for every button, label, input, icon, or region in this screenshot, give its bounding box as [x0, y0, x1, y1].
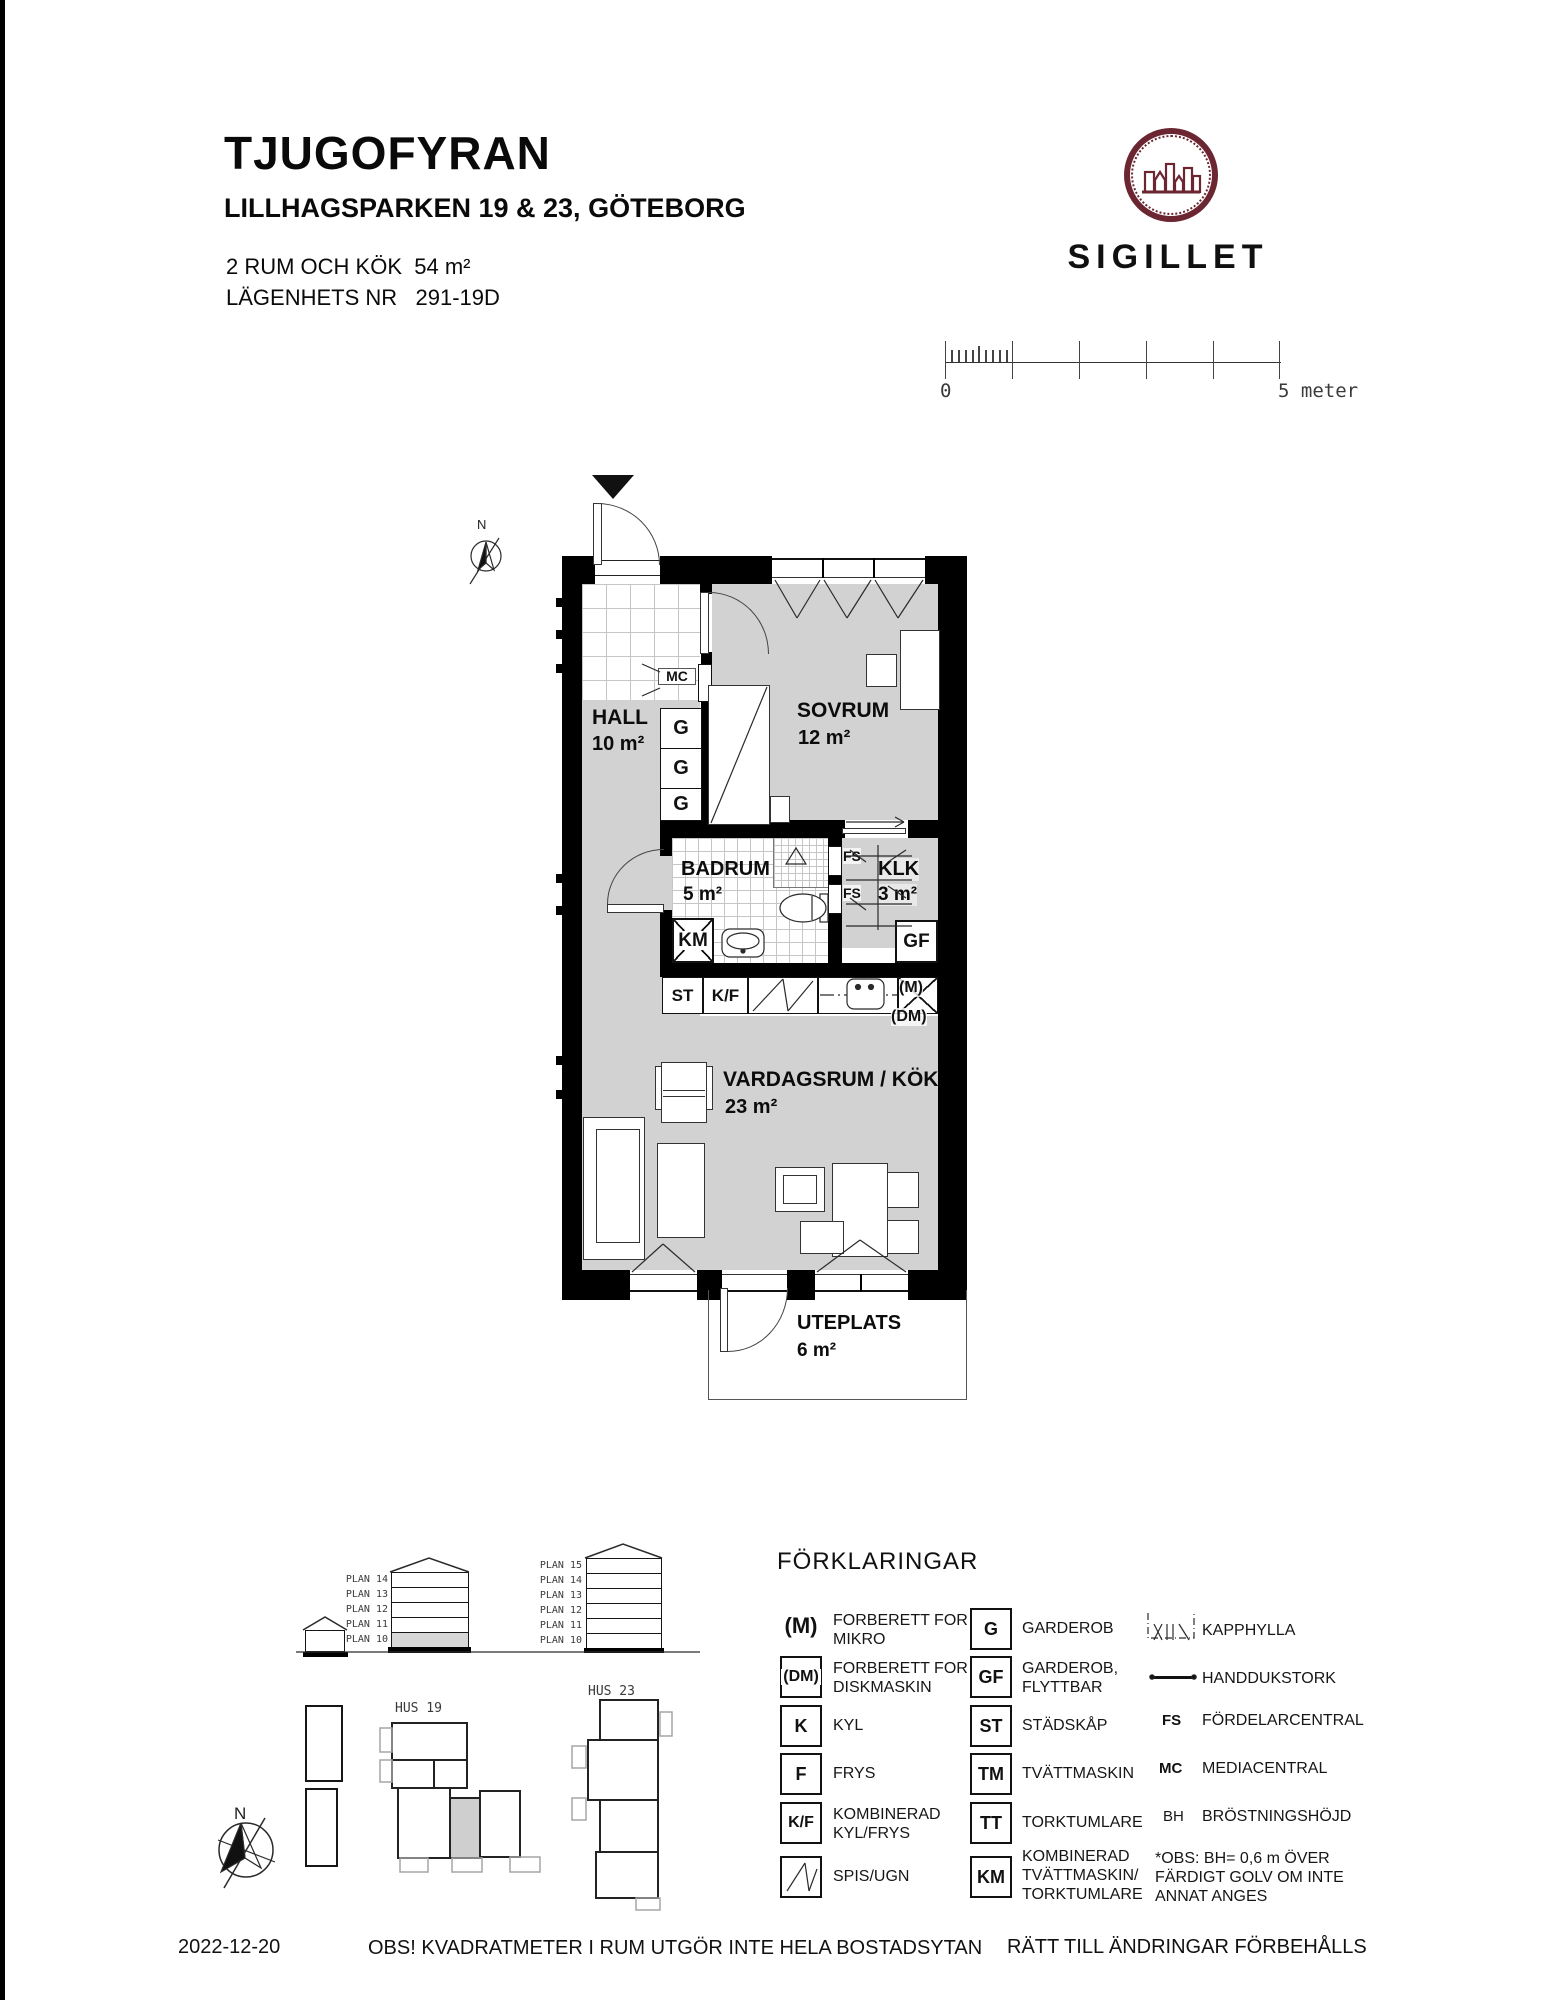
legend-text: SPIS/UGN: [833, 1868, 909, 1887]
room-area-vardagsrum: 23 m²: [725, 1096, 777, 1119]
compass-north-label: N: [477, 517, 486, 532]
legend-text: MEDIACENTRAL: [1202, 1760, 1327, 1779]
room-label-uteplats: UTEPLATS: [797, 1312, 901, 1335]
elevation-floor: [586, 1573, 662, 1589]
window-sovrum: [772, 558, 925, 578]
dining-chair: [887, 1220, 919, 1254]
sovrum-door-leaf: [700, 592, 709, 654]
mikro-plan-label: (M): [899, 979, 923, 997]
logo-wordmark: SIGILLET: [1058, 238, 1278, 277]
scale-end-label: 5 meter: [1278, 380, 1358, 402]
wall: [562, 556, 595, 584]
legend-text: HANDDUKSTORK: [1202, 1670, 1336, 1689]
window-mullion: [822, 558, 824, 578]
legend-symbol-label: TT: [978, 1814, 1004, 1833]
window-mullion: [873, 558, 875, 578]
diskmaskin-plan-label: (DM): [891, 1008, 927, 1026]
legend-symbol-label: TM: [976, 1765, 1006, 1784]
fs-plan-label: FS: [843, 885, 861, 901]
elevation-floor: [586, 1603, 662, 1619]
seal-skyline-icon: [1140, 152, 1202, 198]
wall-tick: [556, 1090, 563, 1099]
elevation-ground-bar: [388, 1647, 471, 1653]
scale-tick: [945, 341, 946, 379]
garderob-label: G: [673, 793, 689, 816]
uteplats-outline: [708, 1290, 967, 1400]
klk-sliding-door-panel: [842, 828, 906, 834]
mediacentral-plan-label: MC: [658, 668, 696, 685]
address-line: LILLHAGSPARKEN 19 & 23, GÖTEBORG: [224, 193, 746, 224]
kombimaskin-label: KM: [676, 931, 710, 951]
legend-text: KAPPHYLLA: [1202, 1622, 1295, 1641]
legend-text: TORKTUMLARE: [1022, 1814, 1143, 1833]
legend-symbol-label: G: [984, 1619, 998, 1640]
site-building: [305, 1788, 338, 1867]
wall-tick: [556, 664, 563, 673]
scale-minor-tick: [951, 350, 953, 362]
legend-symbol-label: KM: [975, 1868, 1007, 1887]
room-label-vardagsrum: VARDAGSRUM / KÖK: [723, 1068, 938, 1092]
room-area-klk: 3 m²: [878, 884, 917, 906]
sigillet-seal-icon: [1124, 128, 1218, 222]
wall: [660, 963, 938, 977]
legend-symbol-label: K/F: [788, 1814, 814, 1832]
garderob-box: G: [660, 748, 702, 789]
plan-level-label: PLAN 15: [536, 1560, 582, 1571]
nightstand: [770, 796, 790, 823]
floorplan-document-page: TJUGOFYRAN LILLHAGSPARKEN 19 & 23, GÖTEB…: [0, 0, 1545, 2000]
elevation-floor: [586, 1618, 662, 1634]
legend-symbol-tm: TM: [970, 1753, 1012, 1795]
scale-halfmeter-tick: [978, 346, 980, 362]
room-label-sovrum: SOVRUM: [797, 699, 889, 723]
wall: [660, 910, 672, 963]
scale-tick: [1146, 341, 1147, 379]
wall-tick: [556, 906, 563, 915]
legend-text: FÖRDELARCENTRAL: [1202, 1712, 1364, 1731]
legend-symbol-dm: (DM): [780, 1656, 822, 1698]
scale-tick: [1279, 341, 1280, 379]
legend-symbol-spis: [780, 1856, 822, 1898]
elevation-floor: [391, 1572, 469, 1588]
armchair-line: [663, 1096, 705, 1097]
legend-symbol-label: ST: [979, 1716, 1002, 1737]
elevation-ground-bar: [584, 1648, 664, 1653]
coffee-table: [657, 1143, 705, 1238]
legend-text: FORBERETT FOR MIKRO: [833, 1612, 968, 1650]
st-label: ST: [672, 986, 694, 1006]
legend-text: KYL: [833, 1717, 863, 1736]
legend-symbol-bh: BH: [1163, 1808, 1184, 1825]
legend-title: FÖRKLARINGAR: [777, 1548, 978, 1576]
plan-level-label: PLAN 14: [342, 1574, 388, 1585]
bed: [708, 685, 770, 825]
scale-minor-tick: [958, 350, 960, 362]
plan-level-label: PLAN 14: [536, 1575, 582, 1586]
kf-label: K/F: [712, 986, 739, 1006]
elevation-ground-bar: [303, 1652, 348, 1657]
elevation-floor-highlighted: [391, 1632, 469, 1648]
legend-symbol-f: F: [780, 1753, 822, 1795]
entrance-arrow-icon: [592, 475, 634, 499]
legend-symbol-g: G: [970, 1608, 1012, 1650]
elevation-floor: [391, 1587, 469, 1603]
wall: [562, 1270, 630, 1300]
elevation-floor: [586, 1633, 662, 1649]
armchair-line: [663, 1090, 705, 1091]
legend-text: GARDEROB: [1022, 1620, 1114, 1639]
desk-chair: [866, 654, 897, 687]
entrance-door-swing: [597, 503, 660, 565]
diskbank-box: [818, 977, 898, 1014]
footer-note: OBS! KVADRATMETER I RUM UTGÖR INTE HELA …: [368, 1937, 982, 1960]
legend-text: FORBERETT FOR DISKMASKIN: [833, 1660, 968, 1698]
legend-symbol-label: K: [795, 1716, 808, 1737]
footer-date: 2022-12-20: [178, 1936, 280, 1959]
plan-level-label: PLAN 12: [342, 1604, 388, 1615]
room-label-badrum: BADRUM: [681, 858, 770, 881]
spis-box: [748, 977, 818, 1014]
legend-text: FRYS: [833, 1765, 875, 1784]
plan-level-label: PLAN 13: [536, 1590, 582, 1601]
wall: [660, 556, 772, 584]
wall: [562, 584, 582, 1300]
dining-chair: [887, 1172, 919, 1208]
plan-level-label: PLAN 11: [342, 1619, 388, 1630]
wall-tick: [556, 1056, 563, 1065]
plan-level-label: PLAN 10: [342, 1634, 388, 1645]
scale-minor-tick: [972, 350, 974, 362]
legend-text: KOMBINERAD KYL/FRYS: [833, 1806, 941, 1844]
legend-symbol-mc: MC: [1159, 1760, 1182, 1777]
scale-minor-tick: [992, 350, 994, 362]
dining-chair: [775, 1167, 825, 1212]
footer-rights: RÄTT TILL ÄNDRINGAR FÖRBEHÅLLS: [1007, 1936, 1367, 1959]
garderob-flyttbar-box: GF: [895, 920, 938, 963]
scale-minor-tick: [965, 350, 967, 362]
scale-tick: [1079, 341, 1080, 379]
shower-area: [773, 838, 828, 888]
fs-plan-label: FS: [843, 848, 861, 864]
plan-level-label: PLAN 13: [342, 1589, 388, 1600]
wall: [938, 584, 967, 1300]
garderob-box: G: [660, 708, 702, 749]
garderob-label: G: [673, 717, 689, 740]
scale-tick: [1213, 341, 1214, 379]
wall-tick: [556, 598, 563, 607]
garderob-label: G: [673, 757, 689, 780]
scale-bar-line: [945, 362, 1281, 363]
legend-note: *OBS: BH= 0,6 m ÖVER FÄRDIGT GOLV OM INT…: [1155, 1850, 1344, 1907]
fordelarcentral-cabinet: [828, 884, 842, 914]
legend-text: KOMBINERAD TVÄTTMASKIN/ TORKTUMLARE: [1022, 1848, 1143, 1905]
small-building-elevation: [305, 1630, 345, 1652]
legend-symbol-km: KM: [970, 1856, 1012, 1898]
wall-tick: [556, 874, 563, 883]
sofa-cushion: [596, 1129, 640, 1243]
room-label-hall: HALL: [592, 706, 648, 730]
page-title: TJUGOFYRAN: [224, 126, 551, 180]
badrum-door-leaf: [607, 904, 664, 913]
legend-text: GARDEROB, FLYTTBAR: [1022, 1660, 1118, 1698]
fordelarcentral-cabinet: [828, 846, 842, 876]
wall: [908, 820, 938, 838]
elevation-floor: [391, 1617, 469, 1633]
dining-chair: [800, 1221, 844, 1254]
site-building: [305, 1705, 343, 1782]
legend-text: STÄDSKÅP: [1022, 1717, 1107, 1736]
stadskap-box: ST: [662, 977, 703, 1014]
legend-symbol-st: ST: [970, 1705, 1012, 1747]
room-area-uteplats: 6 m²: [797, 1340, 836, 1362]
room-area-sovrum: 12 m²: [798, 727, 850, 750]
legend-text: BRÖSTNINGSHÖJD: [1202, 1808, 1351, 1827]
dining-chair-seat: [783, 1175, 817, 1204]
elevation-floor: [586, 1558, 662, 1574]
site-label-hus19: HUS 19: [395, 1701, 442, 1716]
legend-symbol-label: F: [796, 1764, 807, 1785]
apartment-size-line: 2 RUM OCH KÖK 54 m²: [226, 254, 470, 280]
legend-text: TVÄTTMASKIN: [1022, 1765, 1134, 1784]
elevation-floor: [391, 1602, 469, 1618]
scale-minor-tick: [1006, 350, 1008, 362]
legend-symbol-kf: K/F: [780, 1802, 822, 1844]
garderob-box: G: [660, 788, 702, 821]
window-vardagsrum-left: [630, 1274, 697, 1292]
scan-edge-bar: [0, 0, 5, 2000]
compass-north-label: N: [234, 1804, 246, 1824]
legend-symbol-label: GF: [979, 1667, 1004, 1688]
legend-symbol-m: (M): [776, 1613, 826, 1639]
scale-start-label: 0: [940, 380, 951, 402]
legend-symbol-tt: TT: [970, 1802, 1012, 1844]
plan-level-label: PLAN 11: [536, 1620, 582, 1631]
elevation-floor: [586, 1588, 662, 1604]
scale-tick: [1012, 341, 1013, 379]
gf-label: GF: [903, 931, 929, 953]
legend-symbol-gf: GF: [970, 1656, 1012, 1698]
legend-symbol-fs: FS: [1162, 1712, 1181, 1729]
room-area-hall: 10 m²: [592, 733, 644, 756]
site-label-hus23: HUS 23: [588, 1684, 635, 1699]
plan-level-label: PLAN 12: [536, 1605, 582, 1616]
scale-minor-tick: [999, 350, 1001, 362]
wall: [925, 556, 967, 584]
room-area-badrum: 5 m²: [683, 884, 722, 906]
scale-minor-tick: [985, 350, 987, 362]
armchair: [661, 1062, 707, 1123]
armchair-armrest: [706, 1066, 713, 1110]
desk: [900, 630, 940, 710]
legend-symbol-k: K: [780, 1705, 822, 1747]
apartment-number-line: LÄGENHETS NR 291-19D: [226, 285, 500, 311]
plan-level-label: PLAN 10: [536, 1635, 582, 1646]
handdukstork-icon: [1152, 1676, 1194, 1679]
wall-tick: [556, 630, 563, 639]
kyl-frys-box: K/F: [703, 977, 748, 1014]
room-label-klk: KLK: [878, 858, 919, 881]
legend-symbol-label: (DM): [781, 1669, 821, 1686]
kombimaskin-box: KM: [672, 918, 714, 963]
